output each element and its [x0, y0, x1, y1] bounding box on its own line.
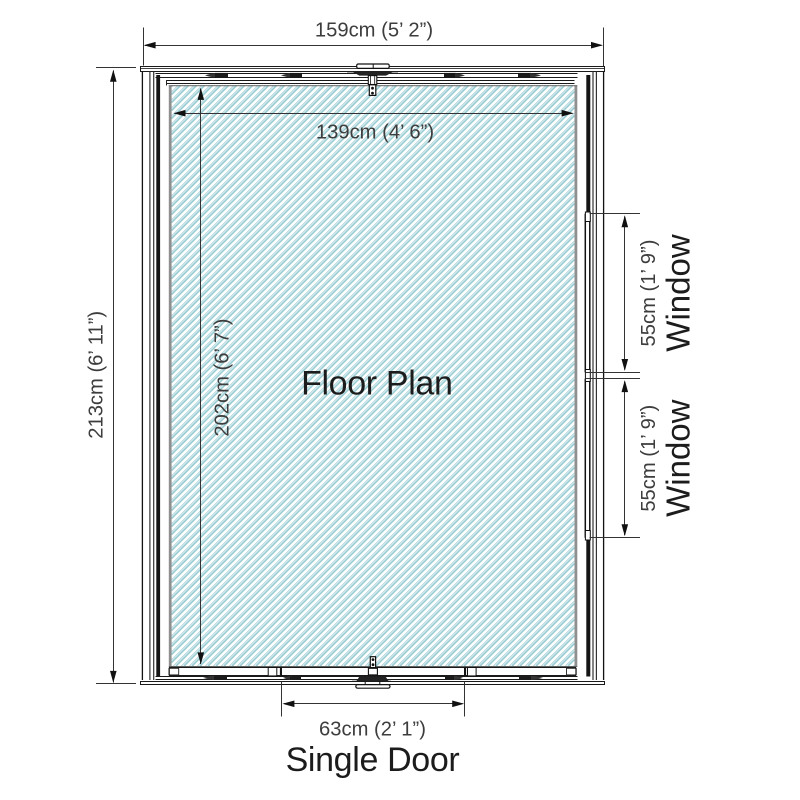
svg-text:213cm (6’ 11”): 213cm (6’ 11”)	[85, 311, 107, 439]
svg-text:63cm (2’ 1”): 63cm (2’ 1”)	[319, 719, 426, 741]
svg-text:Window: Window	[659, 399, 696, 517]
svg-text:Window: Window	[659, 234, 696, 352]
svg-text:202cm (6’ 7”): 202cm (6’ 7”)	[211, 319, 233, 437]
svg-text:Single Door: Single Door	[286, 741, 460, 779]
svg-text:Floor Plan: Floor Plan	[301, 365, 452, 403]
svg-text:159cm (5’ 2”): 159cm (5’ 2”)	[315, 20, 433, 42]
svg-text:55cm (1’ 9”): 55cm (1’ 9”)	[638, 405, 660, 512]
svg-text:55cm (1’ 9”): 55cm (1’ 9”)	[638, 240, 660, 347]
svg-text:139cm (4’ 6”): 139cm (4’ 6”)	[316, 122, 434, 144]
